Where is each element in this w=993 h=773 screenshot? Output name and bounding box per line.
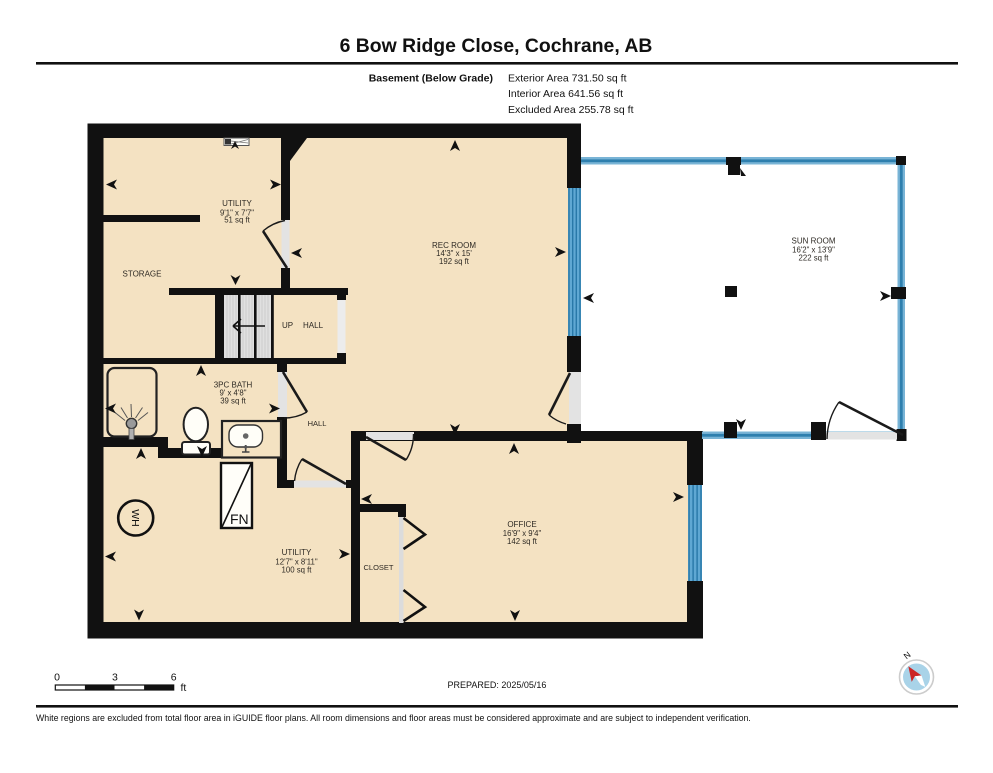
svg-text:0: 0 bbox=[54, 672, 60, 684]
svg-text:222 sq ft: 222 sq ft bbox=[799, 254, 830, 263]
svg-text:39 sq ft: 39 sq ft bbox=[220, 397, 246, 406]
svg-text:Basement (Below Grade): Basement (Below Grade) bbox=[369, 73, 493, 85]
svg-text:UP: UP bbox=[282, 321, 293, 330]
svg-text:WH: WH bbox=[129, 509, 141, 527]
svg-text:Excluded Area 255.78 sq ft: Excluded Area 255.78 sq ft bbox=[508, 104, 634, 116]
svg-text:3: 3 bbox=[112, 672, 118, 684]
svg-text:OFFICE: OFFICE bbox=[507, 520, 536, 529]
svg-text:51 sq ft: 51 sq ft bbox=[224, 216, 250, 225]
svg-text:FN: FN bbox=[230, 511, 249, 527]
svg-text:100 sq ft: 100 sq ft bbox=[282, 566, 313, 575]
svg-text:White regions are excluded fro: White regions are excluded from total fl… bbox=[36, 713, 751, 723]
svg-text:ft: ft bbox=[181, 682, 187, 694]
svg-text:PREPARED: 2025/05/16: PREPARED: 2025/05/16 bbox=[448, 680, 547, 690]
svg-text:142 sq ft: 142 sq ft bbox=[507, 537, 538, 546]
svg-text:CLOSET: CLOSET bbox=[363, 563, 393, 572]
svg-text:UTILITY: UTILITY bbox=[282, 548, 312, 557]
svg-text:STORAGE: STORAGE bbox=[123, 270, 162, 279]
svg-text:Exterior Area 731.50 sq ft: Exterior Area 731.50 sq ft bbox=[508, 73, 627, 85]
svg-text:6 Bow Ridge Close, Cochrane, A: 6 Bow Ridge Close, Cochrane, AB bbox=[340, 35, 653, 57]
svg-text:SUN ROOM: SUN ROOM bbox=[792, 237, 836, 246]
svg-text:UTILITY: UTILITY bbox=[222, 199, 252, 208]
svg-text:HALL: HALL bbox=[303, 321, 324, 330]
svg-text:HALL: HALL bbox=[308, 419, 327, 428]
svg-text:192 sq ft: 192 sq ft bbox=[439, 257, 470, 266]
svg-text:Interior Area 641.56 sq ft: Interior Area 641.56 sq ft bbox=[508, 88, 623, 100]
svg-text:6: 6 bbox=[171, 672, 177, 684]
